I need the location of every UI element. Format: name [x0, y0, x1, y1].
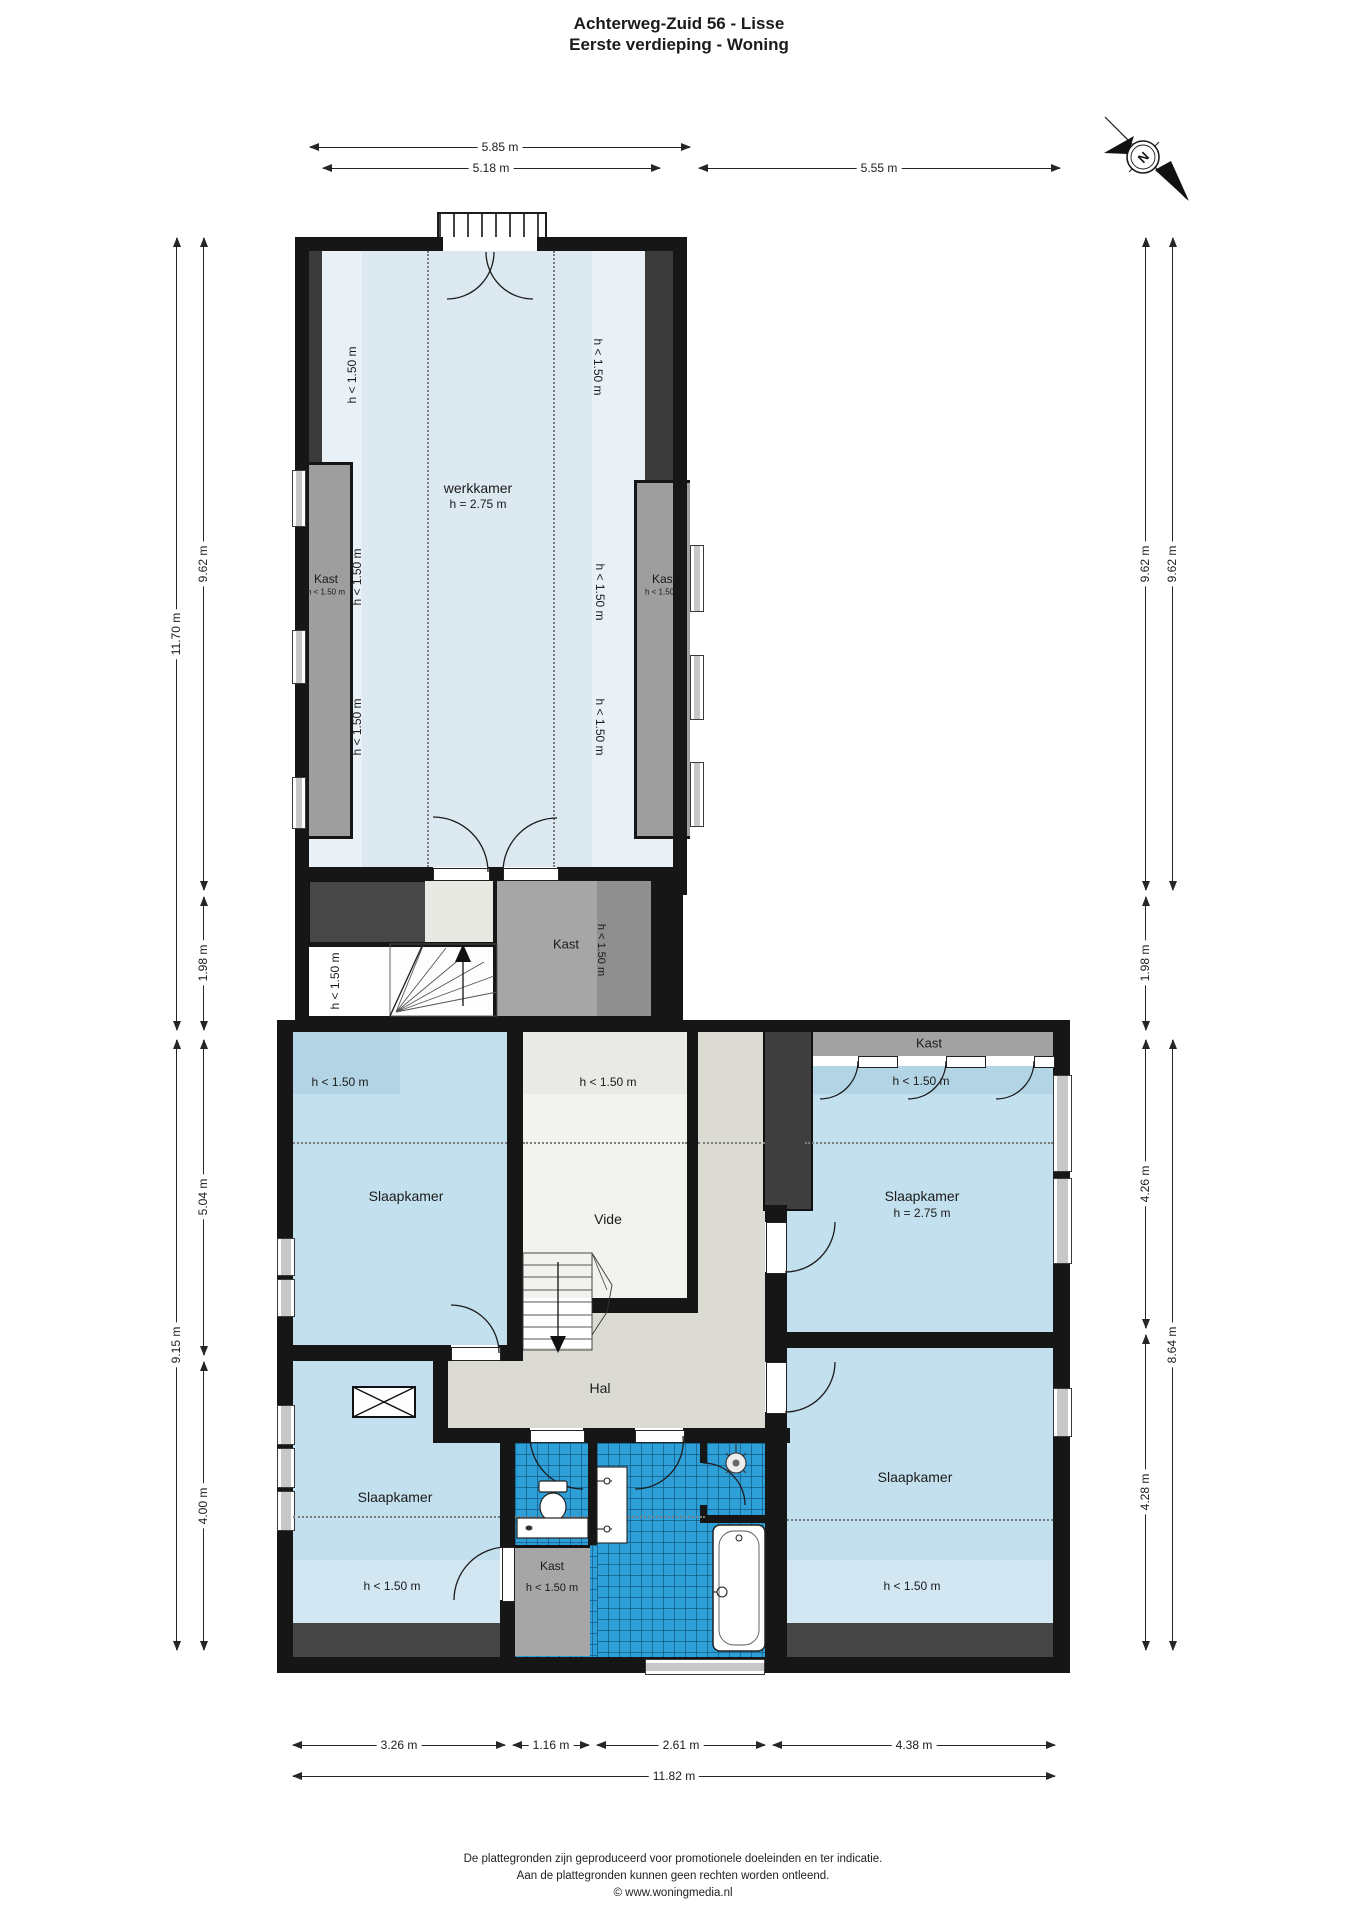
counter-icon — [517, 1518, 588, 1538]
plan-symbol-overlay: N — [0, 0, 1358, 1920]
footer-disclaimer-line1: De plattegronden zijn geproduceerd voor … — [464, 1853, 883, 1865]
door-arc — [820, 1061, 858, 1099]
door-arc — [635, 1436, 683, 1489]
door-arc — [454, 1547, 507, 1600]
door-arc — [785, 1362, 835, 1412]
roof-window-icon — [353, 1387, 415, 1417]
shower-icon — [726, 1444, 746, 1473]
door-arc — [433, 817, 488, 872]
door-arc — [908, 1061, 946, 1099]
compass-north-icon: N — [1104, 117, 1189, 201]
door-arc — [503, 818, 557, 872]
stair-up-arrow — [455, 944, 471, 962]
bathtub-icon — [713, 1525, 765, 1651]
door-arc — [996, 1061, 1034, 1099]
stairs-up-icon — [390, 944, 497, 1016]
door-arc — [785, 1222, 835, 1272]
floorplan-page: Achterweg-Zuid 56 - Lisse Eerste verdiep… — [0, 0, 1358, 1920]
stairs-down-icon — [523, 1253, 612, 1350]
door-arc — [451, 1305, 499, 1353]
sink-icon — [597, 1467, 627, 1543]
footer-disclaimer-line2: Aan de plattegronden kunnen geen rechten… — [517, 1870, 830, 1882]
footer-copyright: © www.woningmedia.nl — [613, 1887, 732, 1899]
toilet-icon — [539, 1481, 567, 1521]
